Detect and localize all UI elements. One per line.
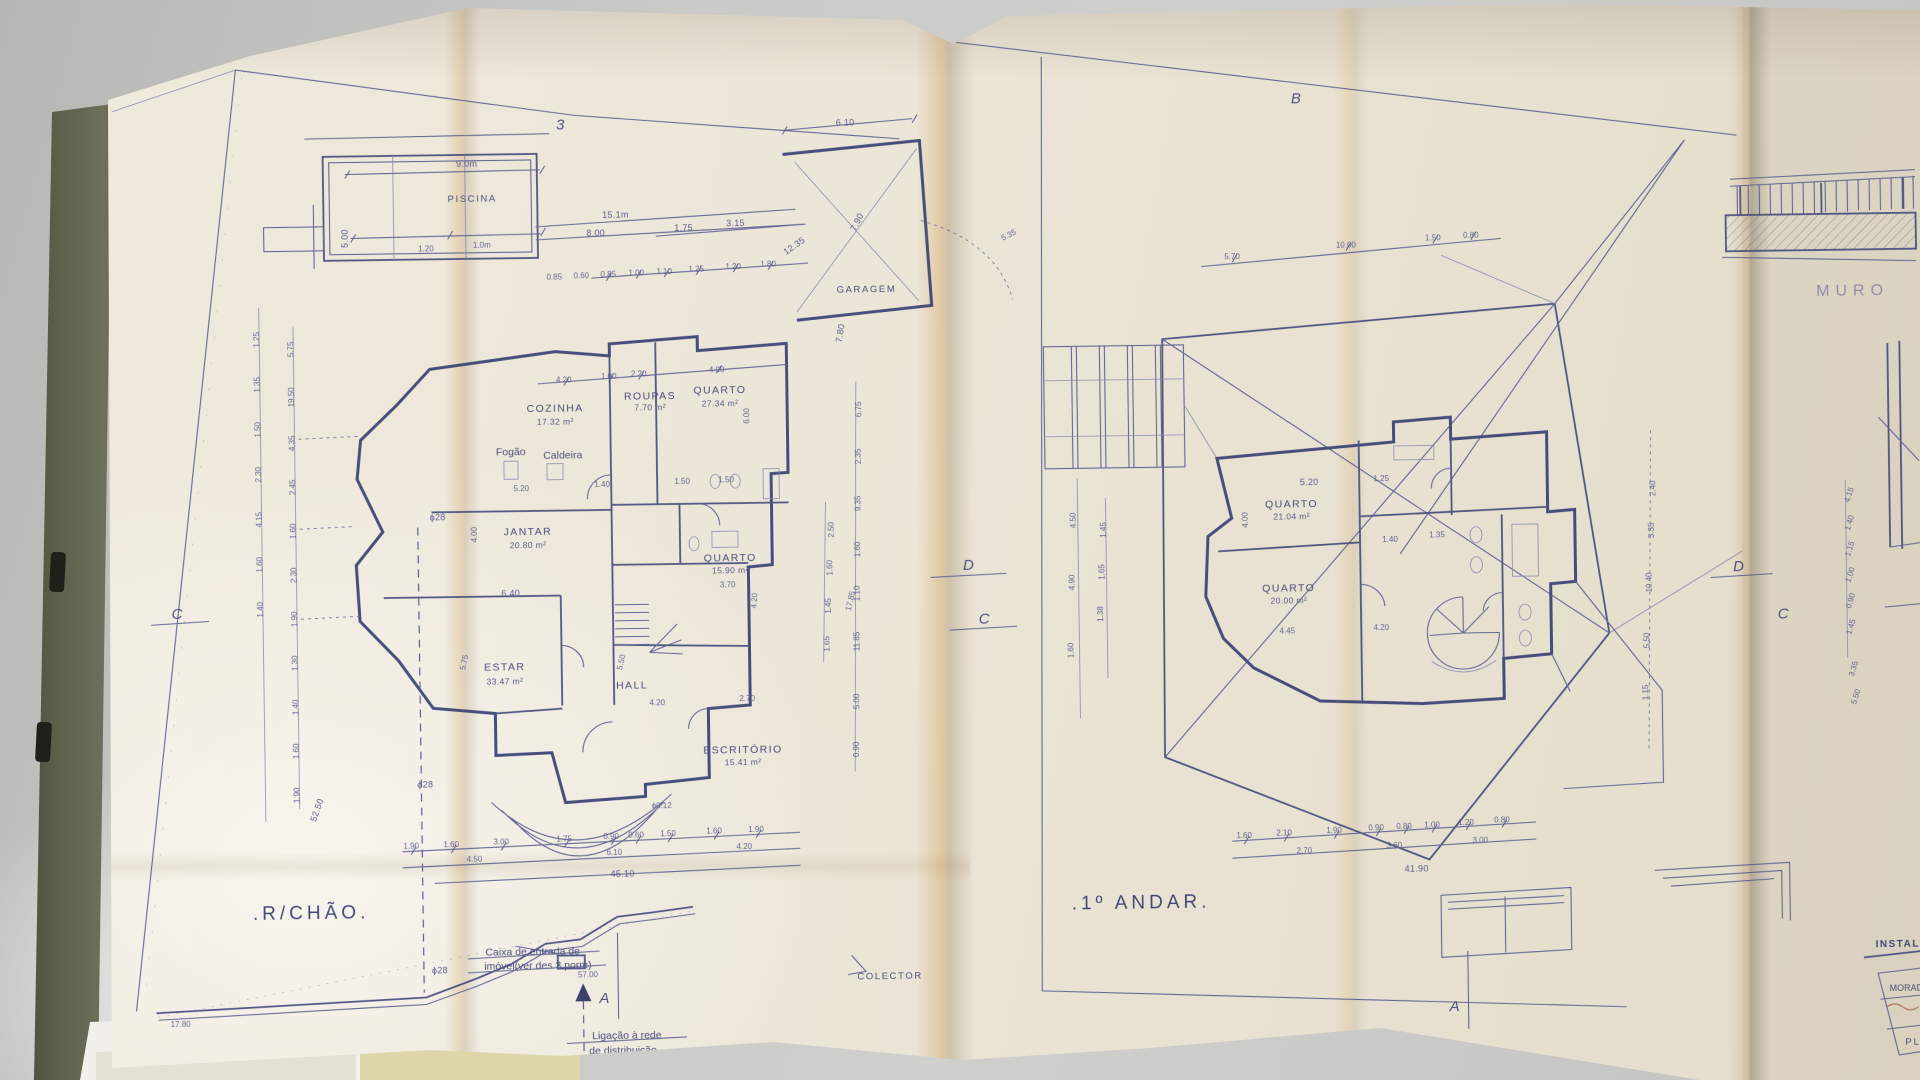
colector-label: COLECTOR <box>857 971 923 983</box>
section-marker-c-left: C <box>171 606 182 623</box>
section-marker-a-left: A <box>598 990 609 1007</box>
pool-dim: 9.0m <box>456 159 477 169</box>
ff-bottom1-dim: 1.00 <box>1424 820 1440 829</box>
left-chain-b-dim: 5.75 <box>286 341 295 357</box>
room-area-jantar: 20.80 m² <box>510 540 547 551</box>
room-label-estar: ESTAR <box>484 661 525 674</box>
ff-bottom1-dim: 2.10 <box>1276 828 1292 837</box>
ff-top-dim: 1.50 <box>1425 233 1441 242</box>
flow-arrow <box>575 983 591 1001</box>
title-block: INSTAL MORAD PL <box>1864 939 1920 1056</box>
bottom-row1-dim: 0.60 <box>628 830 644 839</box>
first-floor-room-labels: QUARTO 21.04 m² QUARTO 20.00 m² <box>1261 498 1319 606</box>
stamp-mark <box>1887 1004 1919 1010</box>
title-block-row2: PL <box>1905 1037 1920 1048</box>
room-area-quarto-low: 20.00 m² <box>1270 595 1307 606</box>
section-marker-c-center: C <box>979 611 990 628</box>
gf-outer-right-chain: 6.75 2.35 9.35 1.60 1.10 11.85 5.00 0.90 <box>847 381 868 771</box>
bottom-row1-dim: 1.60 <box>443 840 459 849</box>
garage-row-dim: 0.85 <box>546 273 562 282</box>
garage-label: GARAGEM <box>837 284 897 296</box>
garage-row-dim: 1.20 <box>725 262 741 271</box>
ff-top-dim: 5.70 <box>1224 252 1240 261</box>
left-chain-b-dim: 4.35 <box>287 435 296 451</box>
section-marker-c-right: C <box>1778 605 1789 622</box>
ground-floor-title: .R/CHÃO. <box>253 901 370 925</box>
ff-bottom-total: 41.90 <box>1405 863 1429 873</box>
ff-dim-135: 1.35 <box>1429 530 1445 539</box>
garage-diag-dim: 7.80 <box>834 323 847 343</box>
gf-dim-640: 6.40 <box>501 588 520 598</box>
left-chain-b-dim: 1.30 <box>291 655 300 671</box>
edge-extra-dim: 3.35 <box>1847 659 1860 677</box>
room-label-quarto-low: QUARTO <box>1262 582 1315 595</box>
phi28-label: ϕ28 <box>417 779 433 789</box>
bottom-row1-dim: 1.90 <box>748 825 764 834</box>
gf-right-chain: 2.50 <box>827 521 836 537</box>
room-label-jantar: JANTAR <box>504 526 553 539</box>
wall-fence-detail <box>1721 170 1916 264</box>
ff-bottom2-dim: 3.00 <box>1472 836 1488 845</box>
gf-bottom-dims: 1.90 1.60 3.00 1.75 0.90 0.60 1.50 1.60 … <box>402 824 801 884</box>
edge-chain-dim: 1.00 <box>1844 566 1857 584</box>
gf-dim-370: 3.70 <box>720 580 736 589</box>
room-label-hall: HALL <box>616 679 648 691</box>
left-chain-a-dim: 4.15 <box>255 511 264 527</box>
ff-left-inner-dim: 1.45 <box>1099 522 1108 538</box>
ground-floor-room-labels: COZINHA 17.32 m² ROUPAS 7.70 m² QUARTO 2… <box>480 384 783 771</box>
outer-chain-dim: 1.10 <box>853 585 862 601</box>
garage-dim: 1.75 <box>674 223 693 233</box>
binder-hole <box>35 722 52 763</box>
ff-left-inner-dim: 1.65 <box>1097 564 1106 580</box>
ff-right-chain-dim: 1.15 <box>1641 684 1650 700</box>
title-block-header: INSTAL <box>1875 939 1920 951</box>
ff-top-dim: 10.00 <box>1336 240 1357 249</box>
left-chain-b-dim: 2.45 <box>288 479 297 495</box>
ff-dim-520: 5.20 <box>1300 477 1319 487</box>
gf-right-chain: 1.60 <box>825 559 834 575</box>
gf-top-dim: 4.00 <box>709 365 725 374</box>
bottom-row1-dim: 3.00 <box>493 837 509 846</box>
garage-dim-top: 6.10 <box>836 117 855 127</box>
section-marker-d-right: D <box>1733 558 1744 575</box>
ff-dim-125: 1.25 <box>1373 474 1389 483</box>
ff-right-chain-dim: 3.35 <box>1647 522 1656 538</box>
binder-hole <box>49 552 66 593</box>
muro-label: MURO <box>1816 282 1889 300</box>
left-chain-a-dim: 1.50 <box>253 421 262 437</box>
bottom-row1-dim: 1.75 <box>556 834 572 843</box>
left-chain-a-dim: 1.60 <box>255 556 264 572</box>
ff-right-chain-dim: 5.50 <box>1642 632 1651 648</box>
bottom-total-dim: 45.10 <box>611 869 635 879</box>
ff-dim-400: 4.00 <box>1241 512 1250 528</box>
title-block-row1: MORAD <box>1890 983 1920 993</box>
phi28-label: ϕ28 <box>432 965 448 975</box>
photo-of-blueprint: PISCINA 9.0m 5.00 1.20 1.0m 15.1m 8.00 <box>0 0 1920 1080</box>
edge-chain-dim: 0.90 <box>1844 592 1857 610</box>
blueprint-paper: PISCINA 9.0m 5.00 1.20 1.0m 15.1m 8.00 <box>0 0 1920 1080</box>
outer-chain-dim: 11.85 <box>852 631 861 651</box>
outer-chain-dim: 0.90 <box>852 741 861 757</box>
bottom-row2-dim: 6.10 <box>606 848 622 857</box>
ff-bottom1-dim: 1.90 <box>1326 826 1342 835</box>
outer-chain-dim: 1.60 <box>853 541 862 557</box>
ff-dim-140: 1.40 <box>1382 535 1398 544</box>
room-label-roupas: ROUPAS <box>624 390 676 403</box>
ff-bottom1-dim: 0.80 <box>1396 822 1412 831</box>
gf-dim-575: 5.75 <box>458 653 470 671</box>
pool-label: PISCINA <box>448 193 497 205</box>
pool-dim: 5.00 <box>340 229 350 248</box>
frame-marker-b: B <box>1291 90 1301 107</box>
room-label-cozinha: COZINHA <box>527 402 584 415</box>
left-chain-b-dim: 2.30 <box>289 567 298 583</box>
ff-left-inner-dim: 1.38 <box>1096 606 1105 622</box>
garage-row-dim: 0.85 <box>600 270 616 279</box>
phi-small-label: ϕ0.12 <box>652 801 673 810</box>
outer-chain-dim: 5.00 <box>852 693 861 709</box>
edge-partial-plan: 4.15 1.40 1.15 1.00 0.90 1.45 3.35 5.50 <box>1840 341 1920 706</box>
bottom-row2-dim: 4.20 <box>736 842 752 851</box>
garage-diag-dim: 12.35 <box>781 235 806 257</box>
gf-mid-dim: 1.40 <box>594 480 610 489</box>
caldeira-label: Caldeira <box>543 449 582 462</box>
garage-row-dim: 1.25 <box>688 265 704 274</box>
room-area-quarto2: 15.90 m² <box>712 565 749 576</box>
gf-dim-400: 4.00 <box>470 526 479 542</box>
pool-dim: 1.0m <box>473 241 491 250</box>
gf-mid-dim: 5.20 <box>513 484 529 493</box>
garage-row-dim: 1.00 <box>628 268 644 277</box>
gf-dim-600: 6.00 <box>742 408 751 424</box>
left-chain-b-dim: 1.60 <box>289 523 298 539</box>
gf-top-dim: 4.20 <box>556 375 572 384</box>
wall-dim: 17.80 <box>171 1020 192 1029</box>
outer-chain-dim: 6.75 <box>854 401 863 417</box>
gf-right-chain: 1.45 <box>824 597 833 613</box>
garage-row-dim: 1.80 <box>760 260 776 269</box>
pool-plan: PISCINA 9.0m 5.00 1.20 1.0m 15.1m 8.00 <box>262 130 806 270</box>
left-chain-b-dim: 1.90 <box>290 611 299 627</box>
bottom-row2-dim: 4.50 <box>467 855 483 864</box>
ff-bottom2-dim: 2.70 <box>1297 846 1313 855</box>
room-label-quarto1: QUARTO <box>693 384 746 397</box>
room-area-estar: 33.47 m² <box>486 676 523 687</box>
fogao-label: Fogão <box>496 446 526 458</box>
left-chain-b-dim: 1.90 <box>292 787 301 803</box>
ff-dim-420: 4.20 <box>1373 623 1389 632</box>
outer-chain-dim: 2.35 <box>854 448 863 464</box>
dim-57: 57.00 <box>578 970 599 979</box>
garage-row-dim: 1.10 <box>656 267 672 276</box>
blueprint-drawing: PISCINA 9.0m 5.00 1.20 1.0m 15.1m 8.00 <box>0 0 1920 1080</box>
ff-top-dim: 0.80 <box>1463 231 1479 240</box>
left-chain-b-dim: 1.40 <box>291 699 300 715</box>
pool-dim: 15.1m <box>602 210 629 220</box>
room-area-cozinha: 17.32 m² <box>537 416 574 427</box>
gf-dim-550: 5.50 <box>615 653 627 671</box>
drive-dim: 5.35 <box>1000 227 1018 242</box>
room-area-quarto1: 27.34 m² <box>702 398 739 409</box>
pergola <box>1043 344 1217 468</box>
gf-low-dim: 4.20 <box>649 698 665 707</box>
gf-mid-dim: 1.50 <box>674 477 690 486</box>
left-chain-a-dim: 2.30 <box>254 466 263 482</box>
bottom-row1-dim: 1.60 <box>706 826 722 835</box>
ff-dim-445: 4.45 <box>1279 626 1295 635</box>
ff-bottom1-dim: 1.60 <box>1236 831 1252 840</box>
left-chain-a-dim: 1.25 <box>252 331 261 347</box>
room-area-escritorio: 15.41 m² <box>725 757 762 768</box>
pool-dim: 1.20 <box>418 244 434 253</box>
left-chain-b-dim: 1.60 <box>292 743 301 759</box>
edge-chain-dim: 1.15 <box>1843 540 1856 558</box>
room-label-escritorio: ESCRITÓRIO <box>703 742 783 756</box>
outer-chain-dim: 9.35 <box>853 495 862 511</box>
pool-dim: 8.00 <box>586 228 605 238</box>
bottom-row1-dim: 0.90 <box>603 832 619 841</box>
gf-property-line: ϕ28 ϕ28 ϕ28 ϕ0.12 <box>414 509 675 993</box>
first-floor-bottom-dims: 1.60 2.10 1.90 0.90 0.80 1.00 1.20 0.80 … <box>1232 815 1537 876</box>
ff-bottom1-dim: 1.20 <box>1458 818 1474 827</box>
ff-right-chain-dim: 2.40 <box>1648 480 1657 496</box>
bottom-row1-dim: 1.90 <box>403 842 419 851</box>
first-floor-markers: A D C <box>1442 557 1794 1029</box>
ff-bottom1-dim: 0.90 <box>1368 823 1384 832</box>
garage-row-dim: 0.60 <box>573 271 589 280</box>
phi28-label: ϕ28 <box>430 512 446 522</box>
room-area-roupas: 7.70 m² <box>634 402 666 412</box>
gf-dim-420v: 4.20 <box>749 592 759 609</box>
garage-dim: 3.15 <box>726 218 745 228</box>
ff-right-chain-dim: 10.40 <box>1645 572 1654 593</box>
bottom-row1-dim: 1.50 <box>660 829 676 838</box>
frame-marker-3: 3 <box>556 116 565 133</box>
ff-left-outer-dim: 4.50 <box>1069 512 1078 528</box>
ff-bottom2-dim: 3.60 <box>1386 841 1402 850</box>
first-floor-title: .1º ANDAR. <box>1072 892 1211 915</box>
gf-retaining-wall: 17.80 Caixa de entrada de imóvel(ver des… <box>155 904 924 1065</box>
center-fold-markers: D C <box>930 556 1017 630</box>
ff-left-outer-dim: 4.90 <box>1067 574 1076 590</box>
edge-chain-dim: 1.40 <box>1843 514 1856 532</box>
left-chain-b-dim: 19.50 <box>287 387 296 408</box>
terrace-details <box>1441 862 1791 957</box>
section-marker-d-center: D <box>963 557 974 574</box>
edge-chain-dim: 4.15 <box>1842 486 1855 504</box>
section-marker-a-right: A <box>1448 998 1459 1015</box>
edge-chain-dim: 1.45 <box>1844 618 1857 636</box>
gf-mid-dim: 1.50 <box>718 475 734 484</box>
edge-extra-dim: 5.50 <box>1849 687 1862 705</box>
room-label-quarto2: QUARTO <box>704 552 757 565</box>
room-label-quarto-up: QUARTO <box>1265 498 1318 511</box>
gf-diag-total: 52.50 <box>308 797 325 823</box>
ff-left-outer-dim: 1.60 <box>1066 642 1075 658</box>
gf-low-dim: 2.70 <box>739 694 755 703</box>
gf-top-dim: 1.00 <box>601 372 617 381</box>
left-chain-a-dim: 1.35 <box>253 376 262 392</box>
room-area-quarto-up: 21.04 m² <box>1273 511 1310 522</box>
gf-top-dim: 2.20 <box>631 369 647 378</box>
left-chain-a-dim: 1.40 <box>256 601 265 617</box>
garage-plan: 6.10 1.75 3.15 0.85 0.60 0.85 1.00 1.10 … <box>544 113 1013 347</box>
ff-bottom1-dim: 0.80 <box>1494 815 1510 824</box>
gf-left-chains: 1.25 1.35 1.50 2.30 4.15 1.60 1.40 5.75 … <box>147 306 364 825</box>
